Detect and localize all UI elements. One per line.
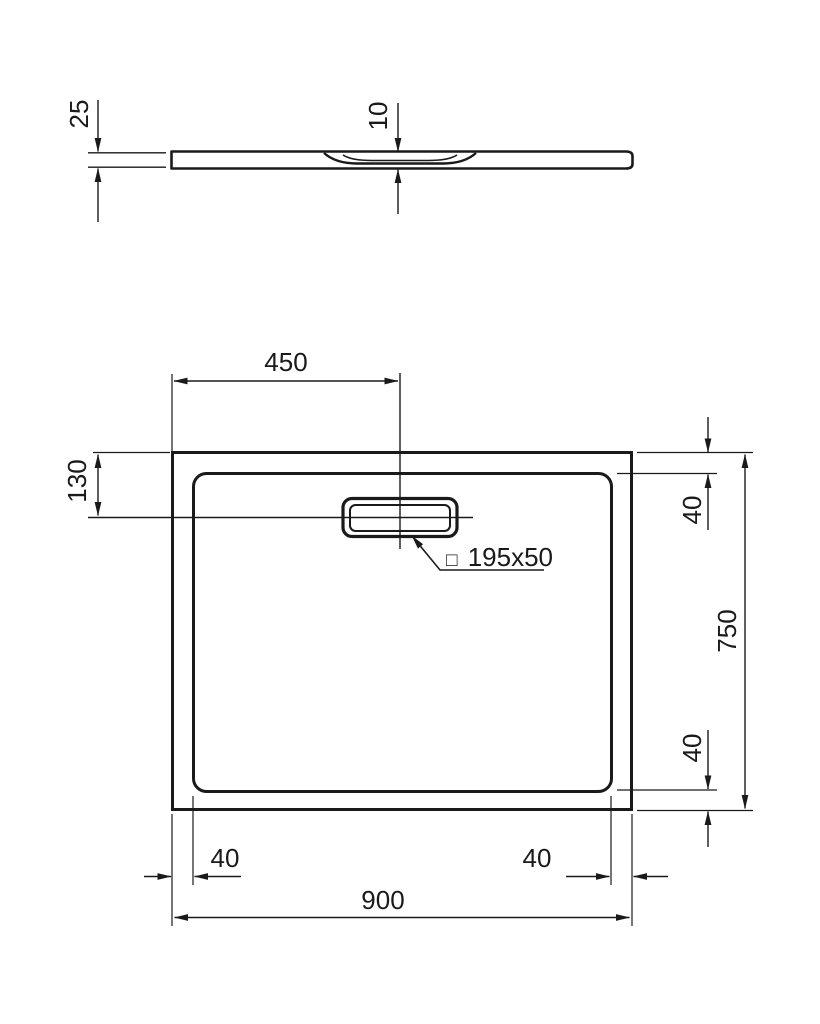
dim-label-overall-width: 900 [361,885,404,915]
dim-label-drain-from-top: 130 [62,459,92,502]
dim-label-rim-bottom: 40 [677,734,707,763]
dim-label-drain-from-left: 450 [264,347,307,377]
shower-tray-dimension-drawing: 25 10 □ 195x50 450 130 [0,0,820,1024]
side-view: 25 10 [64,100,633,222]
technical-drawing-page: 25 10 □ 195x50 450 130 [0,0,820,1024]
drain-size-value: 195x50 [468,542,553,572]
square-symbol: □ [446,550,458,571]
dim-label-recess-depth: 10 [363,102,393,131]
dim-label-overall-depth: 750 [712,609,742,652]
drain-size-label: □ 195x50 [446,542,553,572]
dim-label-rim-top: 40 [677,496,707,525]
dim-label-rim-left: 40 [211,843,240,873]
dim-label-overall-height: 25 [64,100,94,129]
plan-view: □ 195x50 450 130 40 750 40 4 [62,347,753,926]
dim-label-rim-right: 40 [523,843,552,873]
plan-view-outer-edge [173,453,632,810]
